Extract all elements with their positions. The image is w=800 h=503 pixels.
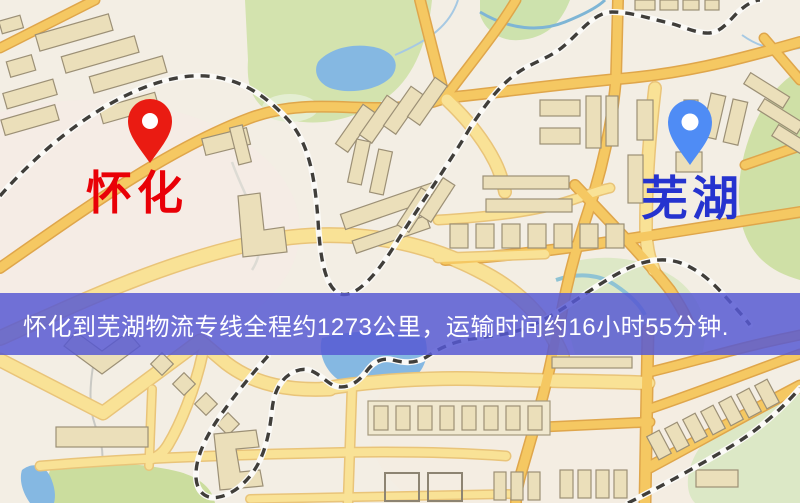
logistics-route-map: 怀化 芜湖 怀化到芜湖物流专线全程约1273公里，运输时间约16小时55分钟.: [0, 0, 800, 503]
destination-city-label: 芜湖: [641, 175, 743, 222]
route-info-banner: 怀化到芜湖物流专线全程约1273公里，运输时间约16小时55分钟.: [0, 293, 800, 355]
route-info-text: 怀化到芜湖物流专线全程约1273公里，运输时间约16小时55分钟.: [0, 307, 729, 342]
origin-city-label: 怀化: [86, 170, 188, 216]
map-canvas: [0, 0, 800, 503]
